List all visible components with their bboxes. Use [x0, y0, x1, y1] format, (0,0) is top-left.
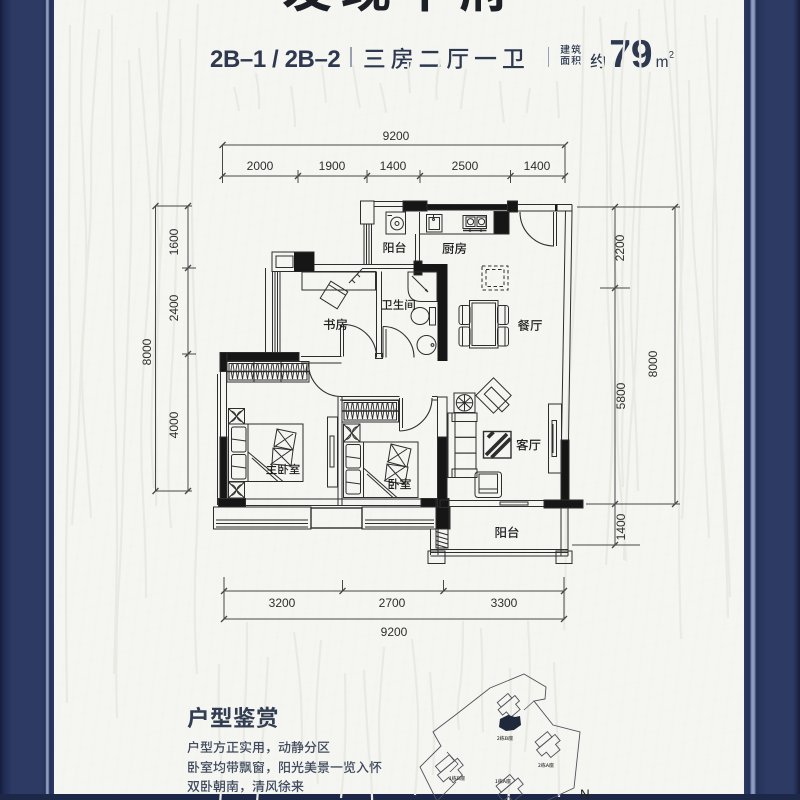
svg-text:主卧室: 主卧室	[266, 462, 301, 478]
svg-text:2400: 2400	[167, 294, 181, 321]
svg-text:餐厅: 餐厅	[517, 315, 542, 334]
svg-text:2500: 2500	[452, 159, 479, 173]
svg-text:厨房: 厨房	[442, 238, 467, 257]
svg-text:书房: 书房	[323, 314, 348, 333]
svg-text:3200: 3200	[269, 596, 296, 610]
svg-text:卫生间: 卫生间	[381, 297, 416, 313]
svg-text:8000: 8000	[646, 350, 660, 377]
svg-text:4000: 4000	[167, 411, 181, 438]
svg-text:1栋B座: 1栋B座	[449, 775, 465, 782]
svg-text:9200: 9200	[383, 129, 410, 143]
svg-text:3300: 3300	[491, 596, 518, 610]
svg-text:2栋A座: 2栋A座	[538, 762, 554, 769]
svg-text:2000: 2000	[247, 159, 274, 173]
svg-text:5800: 5800	[614, 382, 628, 409]
svg-text:1400: 1400	[524, 159, 551, 173]
svg-text:N: N	[580, 787, 590, 800]
svg-text:1600: 1600	[167, 228, 181, 255]
svg-text:1900: 1900	[319, 159, 346, 173]
svg-text:阳台: 阳台	[382, 239, 406, 256]
svg-text:客厅: 客厅	[516, 435, 541, 454]
svg-text:2700: 2700	[379, 596, 406, 610]
svg-text:2栋B座: 2栋B座	[497, 735, 513, 742]
svg-text:阳台: 阳台	[494, 522, 519, 541]
svg-text:9200: 9200	[381, 625, 408, 639]
svg-text:2200: 2200	[613, 234, 627, 261]
svg-text:1400: 1400	[614, 513, 628, 540]
svg-text:8000: 8000	[140, 338, 154, 365]
svg-text:1栋A座: 1栋A座	[495, 778, 511, 785]
svg-text:卧室: 卧室	[387, 476, 411, 493]
svg-text:1400: 1400	[380, 159, 407, 173]
